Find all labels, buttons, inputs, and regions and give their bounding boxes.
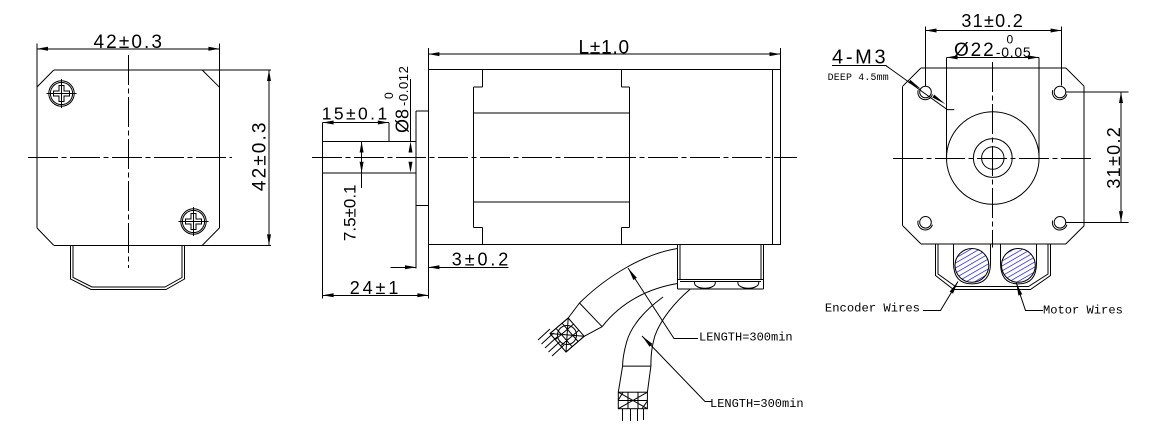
svg-text:0: 0 <box>382 92 396 99</box>
svg-text:0: 0 <box>1007 33 1014 47</box>
svg-text:31±0.2: 31±0.2 <box>961 11 1024 31</box>
svg-text:Encoder Wires: Encoder Wires <box>825 301 920 315</box>
svg-text:31±0.2: 31±0.2 <box>1104 126 1124 189</box>
svg-text:L±1.0: L±1.0 <box>578 37 629 58</box>
svg-text:7.5±0.1: 7.5±0.1 <box>341 184 360 241</box>
svg-text:-0.05: -0.05 <box>996 44 1031 60</box>
svg-text:3±0.2: 3±0.2 <box>452 250 511 270</box>
svg-text:42±0.3: 42±0.3 <box>94 32 165 53</box>
svg-text:42±0.3: 42±0.3 <box>249 121 270 192</box>
svg-text:Motor Wires: Motor Wires <box>1043 304 1123 318</box>
svg-text:-0.012: -0.012 <box>396 66 411 106</box>
svg-text:DEEP 4.5mm: DEEP 4.5mm <box>828 72 889 83</box>
svg-text:24±1: 24±1 <box>350 278 402 298</box>
svg-text:Ø22: Ø22 <box>954 40 996 61</box>
svg-text:Ø8: Ø8 <box>393 109 413 133</box>
svg-text:LENGTH=300min: LENGTH=300min <box>699 330 793 344</box>
svg-text:LENGTH=300min: LENGTH=300min <box>710 397 804 411</box>
svg-text:15±0.1: 15±0.1 <box>322 104 390 124</box>
